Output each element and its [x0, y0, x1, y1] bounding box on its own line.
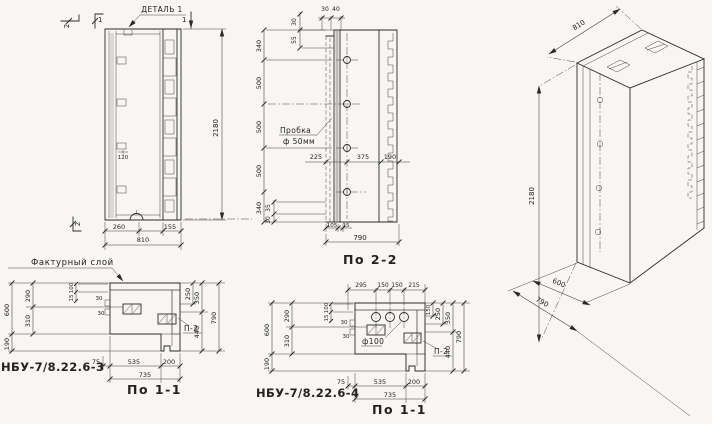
dim-label: 40 [332, 6, 340, 13]
section22-title: По 2-2 [343, 252, 398, 267]
section-1-1-left: Фактурный слой П-2 100 15 30 30 290 310 … [1, 258, 225, 397]
dim-label: 30 [96, 296, 103, 302]
dim-label: 340 [255, 202, 263, 214]
section-mark-1-right: 1 [182, 16, 186, 24]
dim-label: 790 [455, 331, 463, 343]
dim-label-iso-width: 810 [571, 18, 587, 32]
dim-label: 440 [444, 346, 452, 358]
facture-label: Фактурный слой [31, 258, 114, 268]
dim-label: 30 [98, 311, 105, 317]
drawing-canvas: 120 2 1 1 2 ДЕТАЛЬ 1 260 [0, 0, 712, 424]
dim-label: 260 [113, 223, 125, 231]
plug-label-line2: ф 50мм [283, 137, 315, 146]
dim-label: 215 [408, 282, 420, 289]
iso-serrated-edge [697, 62, 704, 230]
dim-label: 500 [255, 77, 263, 89]
dim-label: 15 [69, 294, 75, 301]
isometric-view: 810 2180 600 790 [508, 6, 704, 416]
detail-callout: ДЕТАЛЬ 1 [129, 5, 186, 27]
s11a-embeds [123, 304, 176, 324]
s11a-right-dims: 250 350 440 790 [180, 281, 225, 354]
blueprint-svg: 120 2 1 1 2 ДЕТАЛЬ 1 260 [0, 0, 712, 424]
dim-label: 600 [3, 304, 11, 316]
dim-label: 310 [283, 335, 291, 347]
dim-label: 310 [24, 315, 32, 327]
section22-outline [326, 30, 397, 222]
dim-label: 735 [384, 391, 396, 399]
elevation-outline [105, 29, 181, 220]
s11a-code: НБУ-7/8.22.6-3 [1, 360, 104, 374]
dim-label: 290 [24, 290, 32, 302]
s11b-left-dims: 290 310 600 190 [263, 301, 406, 374]
dim-label: 375 [357, 153, 369, 161]
s11b-small-dims: 100 15 30 30 [324, 302, 353, 340]
dim-label: 340 [255, 40, 263, 52]
section-mark-1-top: 1 [98, 16, 102, 24]
serrated-edge [388, 33, 393, 221]
s11a-outline [105, 283, 180, 351]
s11b-right-dims: 150 250 350 440 790 [425, 301, 470, 374]
s11a-bottom-dims: 75 535 200 735 [92, 336, 183, 383]
dim-label: 55 [291, 36, 298, 44]
dim-label: 350 [193, 292, 201, 304]
s11a-left-dims: 290 310 600 190 [3, 281, 161, 354]
dim-label: 30 [343, 334, 350, 340]
dim-label: 500 [255, 165, 263, 177]
dim-label: 250 [184, 288, 192, 300]
dim-label: 295 [355, 282, 367, 289]
dim-label: 150 [377, 282, 389, 289]
dim-label: 500 [255, 121, 263, 133]
dim-label: 100 [69, 282, 75, 293]
section-mark-2-top: 2 [63, 24, 71, 28]
s11b-top-dims: 295 150 150 215 [346, 282, 428, 310]
dim-label: 535 [128, 358, 140, 366]
dim-label: 735 [139, 371, 151, 379]
dim-label: 100 [324, 302, 330, 313]
hole-label: ф100 [362, 337, 384, 346]
elevation-height-dim: 2180 [183, 29, 252, 220]
dim-label: 30 [265, 216, 272, 224]
dim-label: 30 [321, 6, 329, 13]
plug-label-line1: Пробка [280, 126, 311, 135]
dim-label: 75 [337, 378, 345, 386]
dim-label: 190 [3, 338, 11, 350]
s11a-title: По 1-1 [127, 382, 182, 397]
dim-label: 600 [263, 324, 271, 336]
lifting-loop [130, 214, 143, 221]
dim-label: 535 [374, 378, 386, 386]
elevation-key-blocks [163, 40, 176, 212]
dim-label: 105 [327, 223, 338, 229]
s11b-title: По 1-1 [372, 402, 427, 417]
dim-label: 30 [341, 320, 348, 326]
dim-label-iso-depth-outer: 790 [534, 296, 550, 309]
dim-label: 790 [210, 312, 218, 324]
dim-label: 35 [265, 204, 272, 212]
elevation-embed-tabs [117, 57, 128, 193]
dim-label: 190 [263, 358, 271, 370]
dim-label-height: 2180 [212, 119, 220, 137]
s11b-code: НБУ-7/8.22.6-4 [256, 386, 359, 400]
dim-label: 30 [291, 18, 298, 26]
s11a-small-dims: 100 15 30 30 [69, 282, 108, 317]
dim-label: 250 [434, 308, 442, 320]
dim-label: 200 [408, 378, 420, 386]
section-cut-marks: 2 1 1 2 [61, 12, 191, 231]
section-1-1-mid: ф100 П-2 295 150 150 215 100 15 30 30 [256, 282, 470, 417]
dim-label: 350 [444, 312, 452, 324]
dim-label-iso-depth-inner: 600 [551, 277, 566, 290]
iso-dims: 810 2180 600 790 [508, 6, 690, 416]
section-mark-2-bottom: 2 [74, 222, 82, 226]
section-2-2-view: 340 500 500 500 340 30 40 30 55 Пробка ф… [255, 6, 410, 267]
section22-bottom-small-dims: 35 30 105 15 [265, 200, 352, 233]
dim-label: 440 [193, 326, 201, 338]
dim-label: 225 [310, 153, 322, 161]
dim-label: 190 [384, 153, 396, 161]
iso-block [577, 30, 704, 283]
dim-label: 290 [283, 310, 291, 322]
detail-label: ДЕТАЛЬ 1 [141, 5, 182, 14]
plug-callout: Пробка ф 50мм [279, 118, 332, 146]
dim-label: 200 [163, 358, 175, 366]
section22-mid-dims: 225 375 190 [305, 153, 410, 165]
dim-label: 810 [137, 236, 149, 244]
dim-label-iso-height: 2180 [528, 187, 536, 205]
elevation-view: 120 2 1 1 2 ДЕТАЛЬ 1 260 [61, 5, 252, 250]
dim-label: 155 [164, 223, 176, 231]
dim-label: 15 [343, 223, 350, 229]
dim-label-tab: 120 [118, 155, 129, 161]
dim-label: 150 [391, 282, 403, 289]
elevation-bottom-dims: 260 155 810 [103, 222, 184, 250]
facture-callout: Фактурный слой [8, 258, 123, 281]
dim-label: 150 [426, 304, 432, 315]
dim-label-width: 790 [353, 234, 366, 242]
dim-label: 15 [324, 314, 330, 321]
